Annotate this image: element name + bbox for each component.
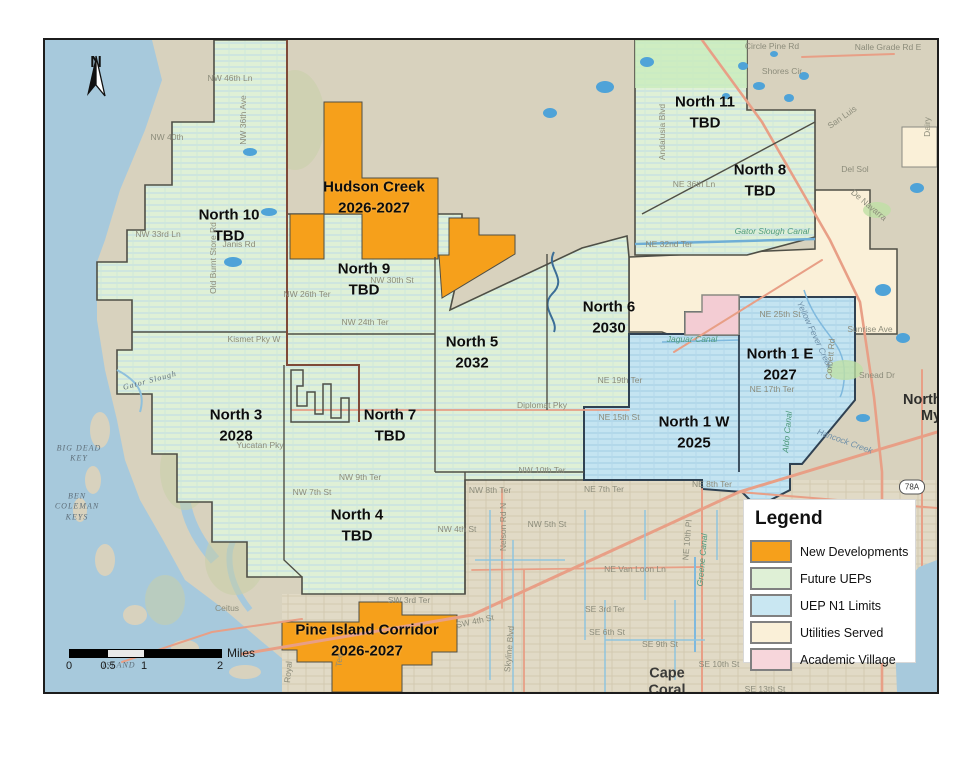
zone-label-north-4: North 4TBD <box>331 505 384 546</box>
zone-label-north-8: North 8TBD <box>734 160 787 201</box>
road-label: Diplomat Pky <box>517 400 567 410</box>
uep-n1-limits-swatch <box>750 594 792 617</box>
road-label: Old Burnt Store Rd <box>208 222 218 294</box>
zone-label-hudson-creek: Hudson Creek2026-2027 <box>323 177 425 218</box>
scale-tick: 1 <box>141 660 147 672</box>
road-label: NW 24th Ter <box>341 317 388 327</box>
road-label: NE Van Loon Ln <box>604 564 666 574</box>
scale-bar: Miles 0 0.5 1 2 <box>69 645 309 675</box>
road-label: Yucatan Pky <box>236 440 283 450</box>
road-label: NE 32nd Ter <box>645 239 692 249</box>
road-label: NW 10th Ter <box>518 465 565 475</box>
road-label: Del Sol <box>841 164 868 174</box>
zone-label-north-7: North 7TBD <box>364 405 417 446</box>
legend-item-academic-village: Academic Village <box>750 646 915 673</box>
road-label: NW 46th Ln <box>208 73 253 83</box>
road-label: NE 7th Ter <box>584 484 624 494</box>
road-label: NE 25th St <box>759 309 800 319</box>
road-label: SE 3rd Ter <box>585 604 625 614</box>
map-document: N North 10TBD Hudson Creek2026-2027 Nort… <box>0 0 975 757</box>
road-label: NW 7th St <box>293 487 332 497</box>
road-label: NW 30th St <box>370 275 413 285</box>
route-shield-78a: 78A <box>899 480 925 495</box>
road-label: NW 33rd Ln <box>135 229 180 239</box>
zone-label-pine-island-corridor: Pine Island Corridor2026-2027 <box>295 620 438 661</box>
road-label: Snead Dr <box>859 370 895 380</box>
north-arrow: N <box>81 54 111 72</box>
road-label: SE 10th St <box>699 659 740 669</box>
road-label: NE 36th Ln <box>673 179 716 189</box>
road-label: NW 40th <box>150 132 183 142</box>
road-label: NE 17th Ter <box>750 384 795 394</box>
legend-item-uep-n1-limits: UEP N1 Limits <box>750 592 915 619</box>
road-label: NW 5th St <box>528 519 567 529</box>
road-label: Nalle Grade Rd E <box>855 42 922 52</box>
scale-tick: 2 <box>217 660 223 672</box>
road-label: NE 8th Ter <box>692 479 732 489</box>
scale-unit: Miles <box>227 646 255 660</box>
city-label-north-fort-myers-1: North <box>903 392 939 408</box>
road-label: Janis Rd <box>222 239 255 249</box>
zone-label-north-11: North 11TBD <box>675 92 735 133</box>
road-label: NW 8th Ter <box>469 485 511 495</box>
road-label: Kismet Pky W <box>228 334 281 344</box>
legend: Legend New Developments Future UEPs UEP … <box>744 500 915 662</box>
road-label: NW 36th Ave <box>238 95 248 144</box>
scale-bar-graphic <box>69 649 222 658</box>
road-label: Nelson Rd N <box>498 503 508 551</box>
road-label: SW 3rd Ter <box>388 595 430 605</box>
road-label: Andalusia Blvd <box>657 104 667 160</box>
map-canvas: N North 10TBD Hudson Creek2026-2027 Nort… <box>43 38 939 694</box>
road-label: NE 15th St <box>598 412 639 422</box>
waterway-label: Gator Slough Canal <box>735 226 810 236</box>
road-label: SE 6th St <box>589 627 625 637</box>
academic-village-swatch <box>750 648 792 671</box>
waterway-label: Jaguar Canal <box>667 334 718 344</box>
road-label: NW 4th St <box>438 524 477 534</box>
utilities-served-swatch <box>750 621 792 644</box>
legend-item-future-ueps: Future UEPs <box>750 565 915 592</box>
zone-label-north-1e: North 1 E2027 <box>747 344 814 385</box>
city-label-cape-coral: Cape Coral <box>648 665 685 694</box>
island-label: BIG DEAD KEY <box>57 444 102 465</box>
road-label: Shores Cir <box>762 66 802 76</box>
zone-label-north-1w: North 1 W2025 <box>659 412 730 453</box>
road-label: Sunrise Ave <box>847 324 892 334</box>
island-label: BEN COLEMAN KEYS <box>55 491 99 522</box>
road-label: Circle Pine Rd <box>745 41 799 51</box>
road-label: Tee <box>333 653 344 668</box>
legend-title: Legend <box>755 508 915 530</box>
scale-tick: 0 <box>66 660 72 672</box>
road-label: NW 9th Ter <box>339 472 381 482</box>
road-label: NE 19th Ter <box>598 375 643 385</box>
zone-label-north-6: North 62030 <box>583 297 636 338</box>
city-label-north-fort-myers-2: Mye <box>921 408 939 424</box>
road-label: Dairy <box>922 117 932 137</box>
future-ueps-swatch <box>750 567 792 590</box>
north-arrow-icon <box>81 54 111 100</box>
legend-item-utilities-served: Utilities Served <box>750 619 915 646</box>
zone-label-north-5: North 52032 <box>446 332 499 373</box>
scale-tick: 0.5 <box>100 660 115 672</box>
road-label: Ceitus <box>215 603 239 613</box>
road-label: NW 26th Ter <box>283 289 330 299</box>
new-developments-swatch <box>750 540 792 563</box>
road-label: SE 13th St <box>745 684 786 694</box>
legend-item-new-developments: New Developments <box>750 538 915 565</box>
road-label: SE 9th St <box>642 639 678 649</box>
